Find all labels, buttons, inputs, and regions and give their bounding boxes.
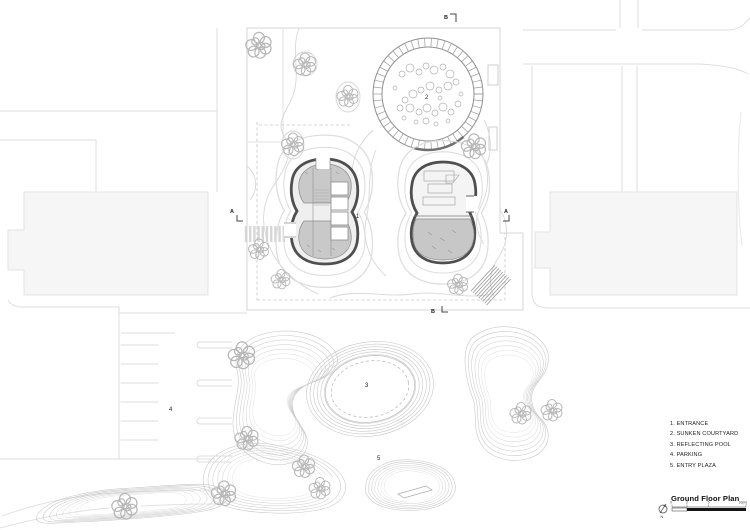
tree-icon bbox=[246, 32, 271, 58]
legend: 1. ENTRANCE 2. SUNKEN COURTYARD 3. REFLE… bbox=[670, 419, 738, 471]
tree-icon bbox=[292, 455, 314, 478]
context-building-left bbox=[8, 192, 208, 295]
legend-item-reflecting-pool: 3. REFLECTING POOL bbox=[670, 440, 738, 450]
ramp-hatch-line bbox=[473, 267, 497, 293]
parking-stall-hairpin bbox=[197, 380, 232, 386]
legend-item-parking: 4. PARKING bbox=[670, 450, 738, 460]
ramp-hatch-line bbox=[483, 276, 507, 302]
site-plan-drawing: 1 2 3 4 5 B B A A N 0 2 5 10(m) bbox=[0, 0, 750, 530]
north-label: N bbox=[661, 515, 664, 519]
parking-stall-hairpin bbox=[197, 418, 232, 424]
tree-icon bbox=[461, 134, 485, 159]
contour-line bbox=[481, 350, 535, 437]
ramp-hatch-line bbox=[475, 269, 499, 295]
landscape-contours bbox=[37, 327, 549, 524]
legend-item-entry-plaza: 5. ENTRY PLAZA bbox=[670, 461, 738, 471]
contour-line bbox=[249, 354, 317, 441]
contour-line bbox=[475, 341, 541, 447]
parking-stalls bbox=[121, 342, 232, 462]
tree-icon bbox=[235, 426, 258, 450]
contour-line bbox=[243, 345, 326, 451]
sunken-courtyard bbox=[373, 38, 483, 150]
contour-clearings bbox=[108, 472, 439, 516]
section-marker-a-right: A bbox=[504, 209, 508, 215]
plan-title: Ground Floor Plan bbox=[671, 494, 739, 503]
contour-line bbox=[465, 327, 548, 461]
context-building-right bbox=[535, 192, 737, 295]
north-arrow-icon: N bbox=[659, 504, 667, 519]
ramp-hatch-line bbox=[477, 270, 501, 296]
building-left bbox=[284, 156, 358, 264]
tree-icon bbox=[337, 86, 358, 108]
tree-icon bbox=[228, 342, 254, 369]
ramp-hatch-line bbox=[481, 274, 505, 300]
label-parking: 4 bbox=[169, 407, 173, 413]
tree-icon bbox=[249, 239, 269, 259]
parking-stall-hairpin bbox=[197, 342, 232, 348]
tree-icon bbox=[271, 270, 290, 289]
contour-line bbox=[227, 455, 320, 500]
label-entry-plaza: 5 bbox=[377, 456, 381, 462]
contour-line bbox=[222, 453, 324, 503]
ground-floor-plan-page: 1 2 3 4 5 B B A A N 0 2 5 10(m) 1. ENTRA… bbox=[0, 0, 750, 530]
scale-tick-10: 10(m) bbox=[739, 501, 747, 505]
section-marker-b-top: B bbox=[444, 15, 448, 21]
section-marker-b-bottom: B bbox=[431, 309, 435, 315]
section-marker-b-bottom-tick bbox=[442, 306, 448, 312]
contour-line bbox=[253, 358, 314, 436]
contour-line bbox=[240, 340, 330, 455]
section-marker-a-left-tick bbox=[237, 215, 243, 221]
tree-icon bbox=[541, 400, 562, 422]
tree-icon bbox=[510, 403, 531, 425]
legend-item-sunken-courtyard: 2. SUNKEN COURTYARD bbox=[670, 429, 738, 439]
building-right bbox=[411, 162, 478, 263]
tree-icon bbox=[293, 53, 315, 76]
legend-item-entrance: 1. ENTRANCE bbox=[670, 419, 738, 429]
section-marker-b-top-tick bbox=[450, 14, 456, 22]
reflecting-pool bbox=[299, 332, 441, 447]
section-marker-a-left: A bbox=[230, 209, 234, 215]
